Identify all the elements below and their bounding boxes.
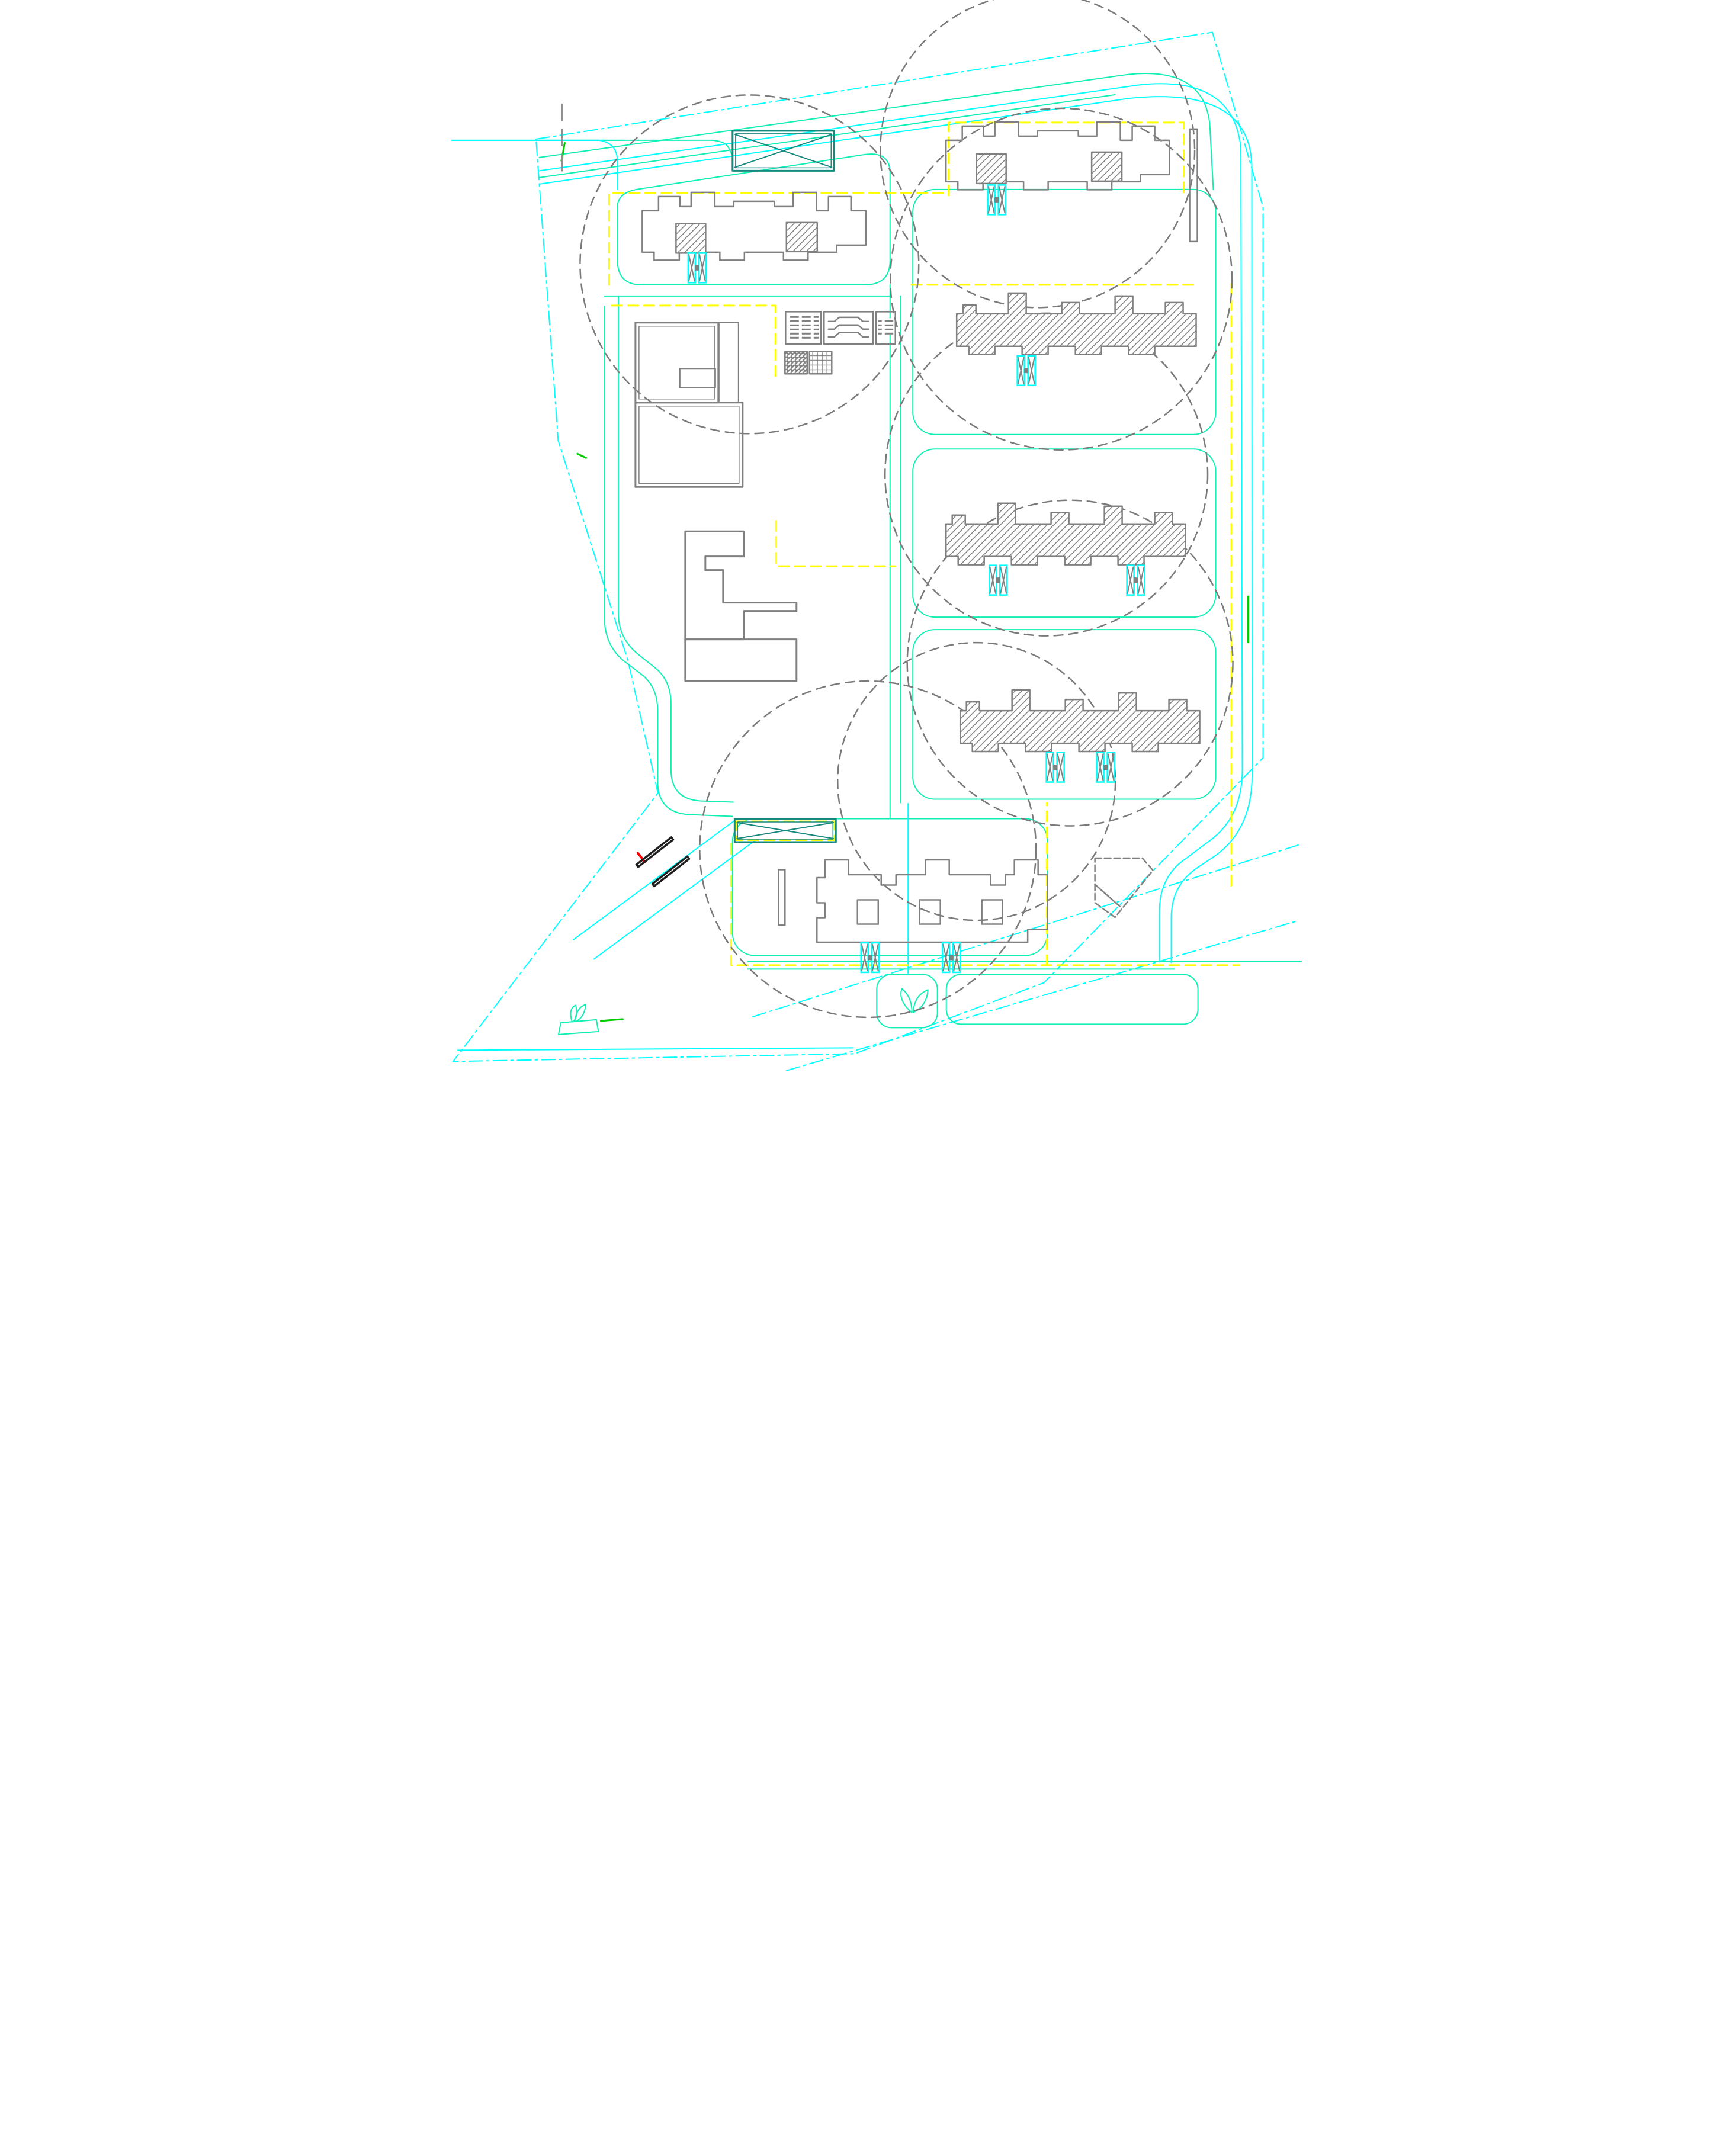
building-east-row3 xyxy=(946,503,1185,565)
parking-canopy-west-fill xyxy=(788,316,819,341)
stair-marker-row2-dot xyxy=(1024,368,1028,373)
coverage-circle-4 xyxy=(885,313,1208,636)
pergola-bench-3 xyxy=(829,333,869,337)
site-plan-canvas xyxy=(434,0,1302,1071)
kiosk-southeast xyxy=(1095,858,1153,917)
west-road-outer xyxy=(604,306,732,816)
building-south-core-1 xyxy=(858,900,878,924)
clubhouse-z-block xyxy=(685,531,797,639)
stair-marker-south-b-dot xyxy=(949,955,954,960)
community-hall-upper xyxy=(636,323,718,403)
community-hall-niche xyxy=(680,368,715,387)
building-south-annex xyxy=(778,869,785,924)
building-northwest-core-2 xyxy=(787,223,817,252)
plot-amenity xyxy=(609,306,775,376)
coverage-circle-2 xyxy=(880,0,1195,307)
building-east-row4 xyxy=(960,690,1199,752)
gatehouse-pot xyxy=(559,1020,598,1035)
community-buildings xyxy=(636,323,797,681)
stair-marker-nw-dot xyxy=(695,265,699,271)
building-south-core-2 xyxy=(920,900,941,924)
stair-marker-south-b xyxy=(942,943,960,972)
south-court-small-west xyxy=(877,974,937,1027)
paving-swatch-herringbone xyxy=(785,352,807,374)
stair-marker-row4-b-dot xyxy=(1103,765,1108,770)
southwest-entry-edge-a xyxy=(573,821,734,940)
survey-tick-south xyxy=(601,1019,622,1021)
stair-marker-row3-b xyxy=(1127,566,1145,595)
stair-marker-row4-a-dot xyxy=(1053,765,1057,770)
stair-marker-row4-b xyxy=(1097,753,1115,782)
coverage-circle-1 xyxy=(580,95,919,433)
site-plan-page xyxy=(434,0,1302,1071)
rack-shelter-fill xyxy=(878,318,893,335)
clubhouse-south-wing xyxy=(685,640,797,681)
stair-marker-south-a-dot xyxy=(868,955,872,960)
community-hall-lower-inner xyxy=(639,406,739,483)
paving-swatch-grid xyxy=(810,352,832,374)
stair-marker-row3-b-dot xyxy=(1134,577,1138,583)
garage-ramp-south xyxy=(734,819,836,842)
stair-marker-row2 xyxy=(1018,356,1035,386)
annotations xyxy=(561,104,1249,1021)
entry-gate-bar-2 xyxy=(652,856,689,886)
community-hall-corridor xyxy=(719,323,739,403)
south-court-small-east xyxy=(946,974,1198,1024)
plot-clubhouse xyxy=(776,521,895,566)
building-northeast-core-2 xyxy=(1092,152,1122,181)
southwest-boundary-inner xyxy=(458,1048,853,1050)
south-gate-leaf-west xyxy=(901,988,912,1012)
building-northwest-core-1 xyxy=(676,223,705,253)
plot-south xyxy=(731,844,1239,965)
stair-marker-nw xyxy=(688,253,706,282)
main-road-edge-b xyxy=(539,84,1242,962)
loop-northwest xyxy=(617,154,890,285)
kiosk-southeast-split xyxy=(1095,884,1120,906)
stair-marker-row3-a-dot xyxy=(996,577,1000,583)
stair-marker-row3-a xyxy=(989,566,1007,595)
northwest-corner-curb xyxy=(452,140,617,190)
stair-marker-row4-a xyxy=(1047,753,1064,782)
coverage-circle-3 xyxy=(890,108,1232,450)
pergola-bench-1 xyxy=(829,317,869,322)
survey-tick-west xyxy=(577,454,586,458)
building-northeast-core-1 xyxy=(977,154,1006,184)
gatehouse-leaf-west xyxy=(570,1005,576,1022)
building-east-row2 xyxy=(957,293,1196,355)
ramps xyxy=(733,131,836,842)
stair-marker-south-a xyxy=(861,943,879,972)
entry-gate-bar-1 xyxy=(636,837,673,867)
pergola-bench-2 xyxy=(829,325,869,329)
stair-marker-ne-dot xyxy=(994,197,999,203)
community-hall-lower xyxy=(636,403,743,487)
site-furniture xyxy=(785,311,895,374)
coverage-circle-7 xyxy=(837,643,1115,920)
building-south-outline xyxy=(817,860,1047,942)
